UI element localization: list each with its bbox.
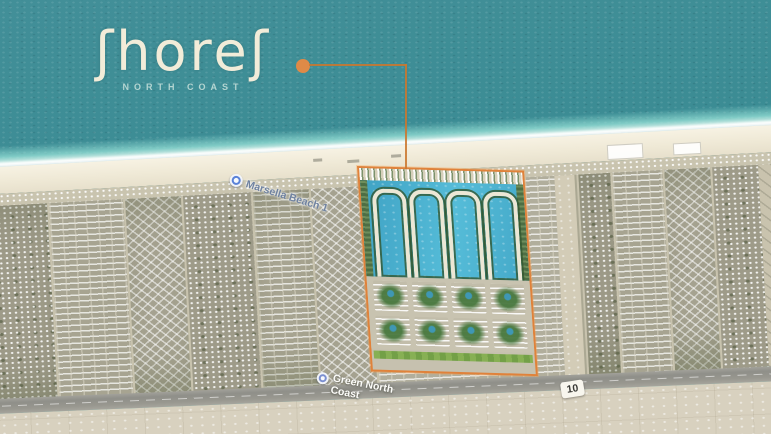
site-boundary <box>357 166 538 376</box>
residential-block <box>414 316 450 347</box>
residential-block <box>451 283 487 314</box>
beach-furniture-row <box>391 154 401 158</box>
brand-subtitle: NORTH COAST <box>52 82 314 92</box>
callout-line-vertical <box>405 64 407 169</box>
aerial-map: ʃhoreʃ NORTH COAST Marsella Beach 1 Gree… <box>0 0 771 434</box>
lagoon-arch-cluster <box>371 188 411 277</box>
green-buffer-strip <box>374 351 533 363</box>
beach-furniture-row <box>313 158 322 161</box>
road-poi-icon <box>316 371 330 385</box>
residential-block <box>490 284 526 315</box>
brand-wordmark: ʃhoreʃ <box>52 24 314 81</box>
lagoon-arch-cluster <box>482 192 522 281</box>
brand-logo: ʃhoreʃ NORTH COAST <box>52 24 314 92</box>
beach-club-building <box>607 143 644 160</box>
residential-block-grid <box>367 276 535 353</box>
parcel-strip <box>181 192 264 398</box>
lagoon-arch-cluster <box>408 189 448 278</box>
residential-block <box>412 282 448 313</box>
residential-block <box>373 280 409 311</box>
lagoon-district <box>360 180 529 281</box>
beach-furniture-row <box>347 159 359 163</box>
beach-club-building <box>673 142 702 155</box>
residential-block <box>492 318 528 349</box>
lagoon-arch-cluster <box>445 190 485 279</box>
callout-line-horizontal <box>309 64 407 66</box>
residential-block <box>375 315 411 346</box>
parcel-strip <box>47 199 136 405</box>
residential-block <box>453 317 489 348</box>
